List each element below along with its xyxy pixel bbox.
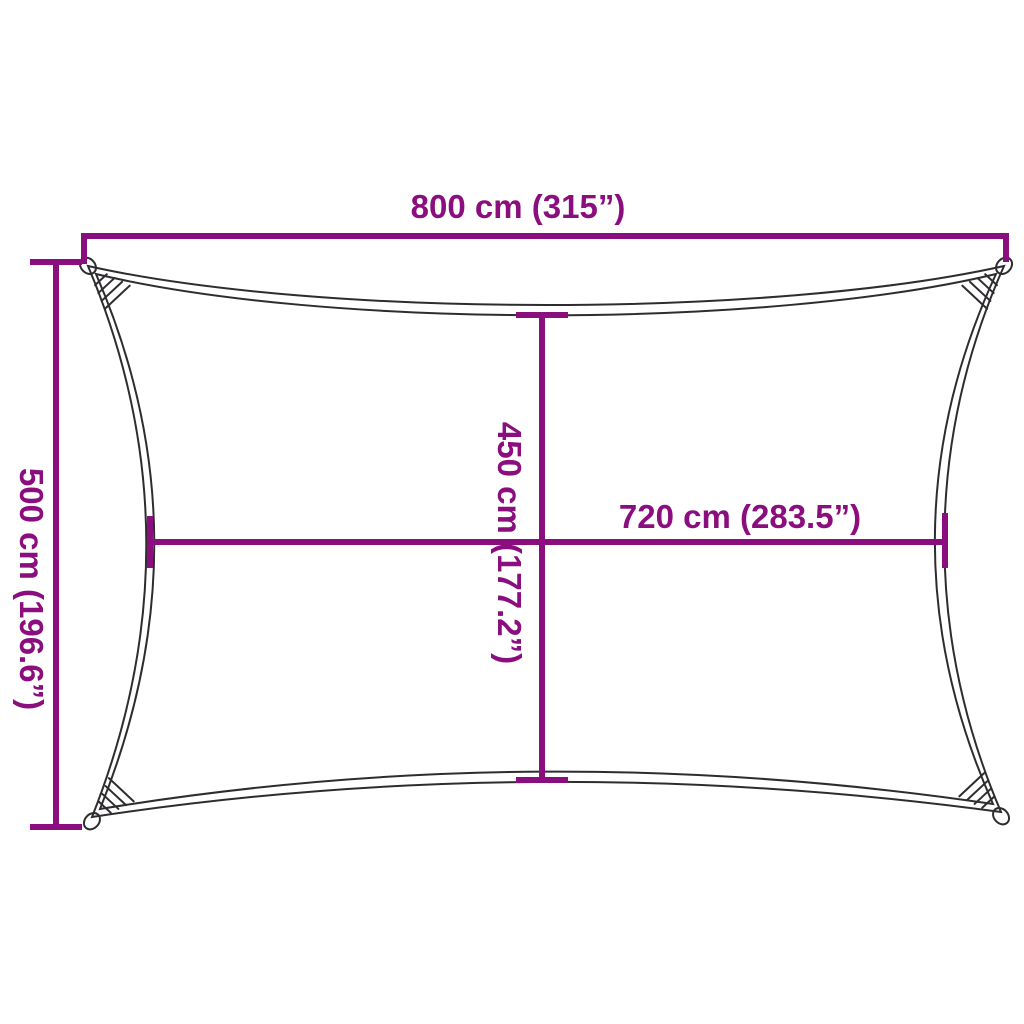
- hatch-line: [109, 778, 134, 801]
- hatch-line: [967, 781, 987, 800]
- height-dimension-label: 500 cm (196.6”): [12, 468, 50, 710]
- grommet-loop: [81, 810, 104, 833]
- inner-width-dimension-label: 720 cm (283.5”): [619, 498, 861, 536]
- hatch-line: [105, 286, 130, 309]
- dimension-line-width: [84, 233, 1006, 264]
- hatch-line: [106, 786, 126, 805]
- width-dimension-label: 800 cm (315”): [411, 188, 626, 226]
- dimension-diagram: 800 cm (315”) 500 cm (196.6”) 450 cm (17…: [0, 0, 1024, 1024]
- hatch-line: [962, 286, 987, 309]
- hatch-line: [102, 282, 122, 301]
- grommet-loop: [990, 805, 1013, 828]
- corner-grommet-top-right: [962, 248, 1022, 309]
- corner-grommet-top-left: [69, 248, 129, 309]
- inner-height-dimension-label: 450 cm (177.2”): [490, 422, 528, 664]
- hatch-line: [959, 773, 984, 796]
